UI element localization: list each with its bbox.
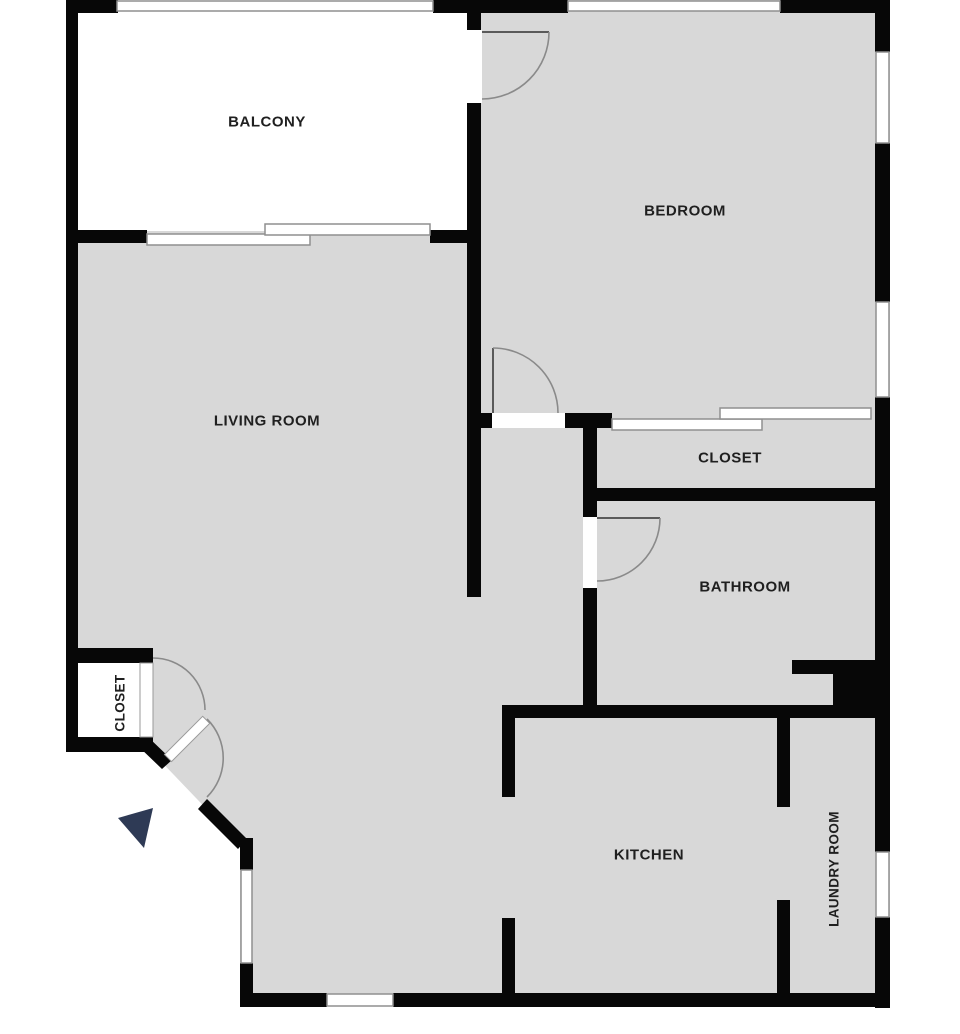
bedroom-top-window: [568, 1, 780, 11]
bedroom-right-window-2: [876, 302, 889, 397]
shaft-block: [833, 660, 890, 718]
room-label-closet-hall: CLOSET: [698, 450, 762, 467]
floor-plan: BALCONY BEDROOM LIVING ROOM CLOSET BATHR…: [0, 0, 960, 1034]
room-label-living-room: LIVING ROOM: [214, 413, 320, 430]
left-lower-window: [241, 870, 252, 963]
laundry-window: [876, 852, 889, 917]
closet-slider-panel-2: [720, 408, 871, 419]
balcony-railing: [117, 1, 433, 11]
bottom-window: [327, 994, 393, 1006]
room-label-bathroom: BATHROOM: [699, 579, 790, 596]
bedroom-right-window-1: [876, 52, 889, 143]
room-label-kitchen: KITCHEN: [614, 847, 684, 864]
room-label-laundry-room: LAUNDRY ROOM: [827, 811, 842, 927]
floor-plan-drawing: [0, 0, 960, 1034]
room-label-balcony: BALCONY: [228, 114, 306, 131]
room-label-closet-entry: CLOSET: [113, 674, 128, 731]
floor-layer: [0, 0, 890, 1034]
room-label-bedroom: BEDROOM: [644, 203, 726, 220]
balcony-slider-panel-2: [265, 224, 430, 235]
closet-slider-panel-1: [612, 419, 762, 430]
